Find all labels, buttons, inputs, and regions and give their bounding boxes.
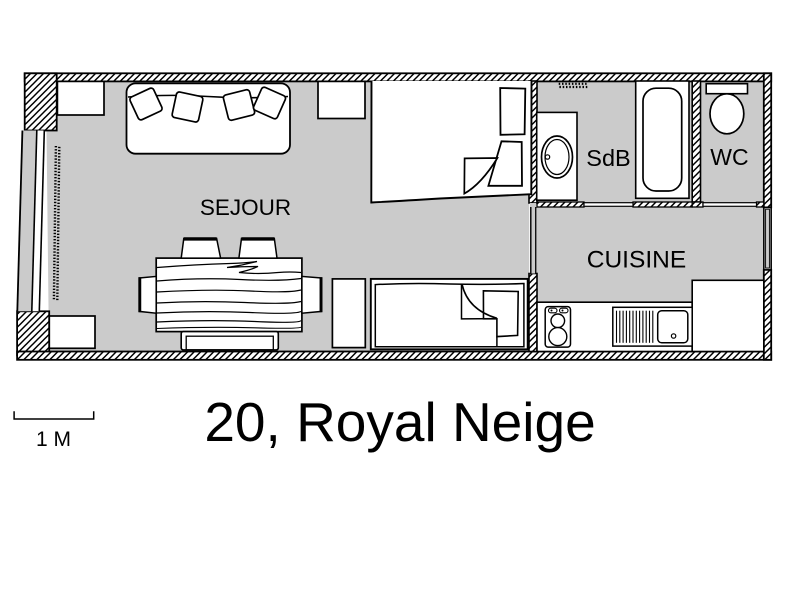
svg-text:20, Royal Neige: 20, Royal Neige <box>204 391 595 453</box>
svg-text:SdB: SdB <box>586 145 630 171</box>
svg-text:SEJOUR: SEJOUR <box>200 195 291 220</box>
svg-text:WC: WC <box>710 144 748 170</box>
svg-text:1 M: 1 M <box>36 428 71 451</box>
svg-text:CUISINE: CUISINE <box>587 247 686 274</box>
